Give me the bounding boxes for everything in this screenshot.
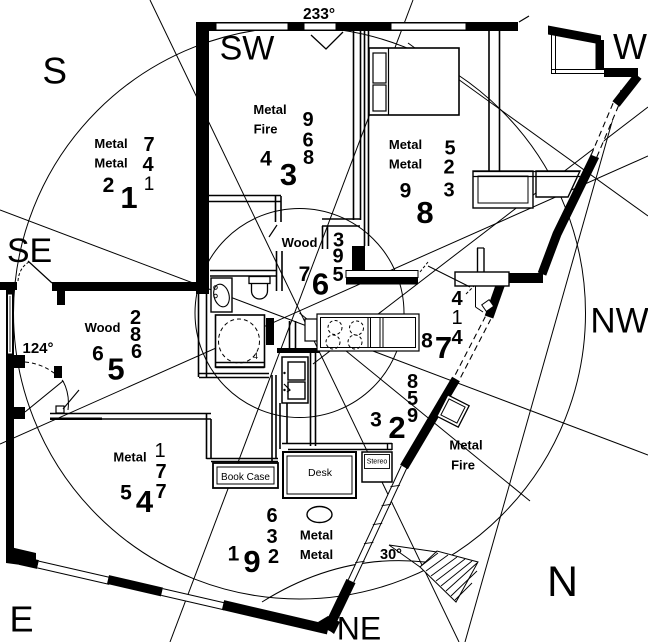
- svg-text:Metal: Metal: [389, 157, 422, 172]
- svg-text:1: 1: [154, 440, 165, 462]
- svg-text:N: N: [547, 558, 578, 606]
- svg-text:2: 2: [443, 157, 454, 179]
- svg-text:Metal: Metal: [300, 528, 333, 543]
- svg-text:2: 2: [268, 546, 279, 568]
- svg-text:5: 5: [107, 352, 124, 387]
- svg-text:Metal: Metal: [113, 450, 146, 465]
- svg-text:1: 1: [120, 180, 137, 215]
- svg-text:9: 9: [243, 544, 260, 579]
- svg-text:4: 4: [253, 351, 258, 361]
- svg-text:Metal: Metal: [94, 136, 127, 151]
- svg-text:4: 4: [260, 148, 272, 171]
- svg-text:5: 5: [332, 264, 343, 286]
- svg-text:1: 1: [451, 307, 462, 329]
- svg-text:9: 9: [407, 405, 418, 427]
- svg-text:233°: 233°: [303, 6, 335, 23]
- svg-text:W: W: [613, 26, 647, 67]
- svg-text:SE: SE: [7, 232, 52, 270]
- svg-text:S: S: [42, 50, 67, 91]
- svg-text:Fire: Fire: [451, 458, 475, 473]
- svg-text:NE: NE: [337, 611, 381, 642]
- svg-text:Fire: Fire: [254, 122, 278, 137]
- svg-text:SW: SW: [220, 30, 275, 68]
- svg-text:9: 9: [400, 180, 412, 203]
- svg-text:Metal: Metal: [300, 547, 333, 562]
- svg-text:3: 3: [370, 409, 382, 432]
- svg-text:3: 3: [266, 526, 277, 548]
- svg-text:6: 6: [131, 341, 142, 363]
- svg-text:Metal: Metal: [389, 137, 422, 152]
- svg-text:Metal: Metal: [449, 438, 482, 453]
- svg-text:7: 7: [299, 263, 311, 286]
- svg-text:Book Case: Book Case: [221, 472, 270, 483]
- svg-text:2: 2: [103, 174, 115, 197]
- svg-text:E: E: [9, 598, 33, 639]
- svg-text:NW: NW: [590, 302, 648, 341]
- svg-text:8: 8: [421, 330, 433, 353]
- svg-text:Wood: Wood: [282, 235, 318, 250]
- svg-text:9: 9: [302, 109, 313, 131]
- svg-text:1: 1: [228, 543, 240, 566]
- svg-text:124°: 124°: [22, 340, 53, 357]
- svg-text:30°: 30°: [380, 547, 402, 563]
- svg-text:Desk: Desk: [308, 467, 333, 479]
- svg-text:4: 4: [136, 484, 154, 519]
- svg-text:Wood: Wood: [85, 320, 121, 335]
- svg-text:7: 7: [155, 461, 166, 483]
- svg-text:7: 7: [155, 481, 166, 503]
- svg-text:6: 6: [92, 343, 104, 366]
- svg-text:8: 8: [303, 147, 314, 169]
- svg-text:4: 4: [451, 327, 463, 349]
- svg-text:3: 3: [280, 157, 297, 192]
- svg-text:Stereo: Stereo: [367, 459, 388, 466]
- svg-text:6: 6: [312, 267, 329, 302]
- svg-text:1: 1: [144, 174, 155, 195]
- svg-text:3: 3: [443, 180, 454, 202]
- svg-text:5: 5: [120, 482, 132, 505]
- svg-text:7: 7: [143, 134, 154, 156]
- svg-text:6: 6: [266, 505, 277, 527]
- svg-text:Metal: Metal: [253, 102, 286, 117]
- svg-text:7: 7: [435, 330, 452, 365]
- svg-text:8: 8: [416, 195, 433, 230]
- svg-text:2: 2: [388, 410, 405, 445]
- svg-text:Metal: Metal: [94, 156, 127, 171]
